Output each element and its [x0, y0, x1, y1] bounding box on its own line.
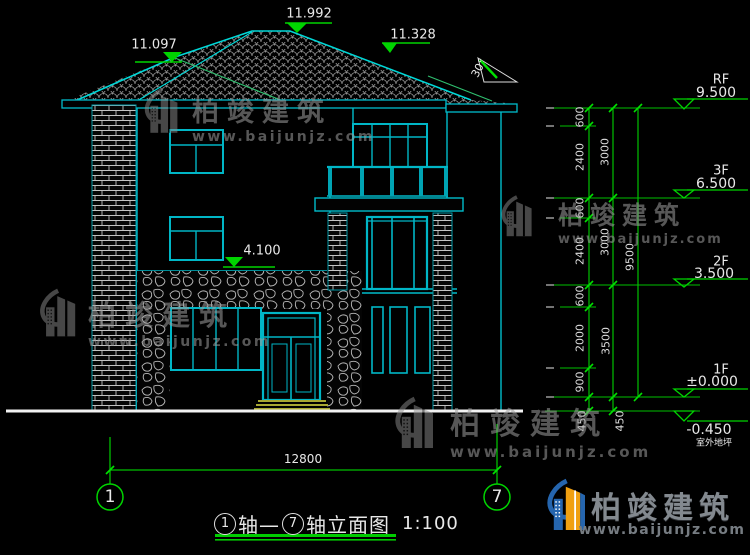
balcony-railing [327, 167, 448, 196]
elev-left-ridge: 11.097 [131, 38, 177, 53]
axis-bubble-7: 7 [492, 487, 503, 507]
title-mid: 轴— [238, 509, 280, 538]
axis-bubble-1: 1 [105, 487, 116, 507]
cad-elevation-drawing: 11.097 11.992 11.328 4.100 30° RF 9.500 … [0, 0, 750, 555]
watermark-bottom: 柏竣建筑 www.baijunjz.com [450, 399, 651, 461]
level-markers [674, 99, 748, 421]
title-axis-circle-left: 1 [214, 513, 236, 535]
level-value-1f: ±0.000 [686, 374, 738, 390]
brick-pillar-left [92, 105, 136, 410]
elev-main-ridge: 11.992 [286, 7, 332, 22]
extension-leader-dashes [546, 108, 554, 397]
brand-logo-url: www.baijunjz.com [579, 522, 746, 538]
level-value-2f: 3.500 [694, 266, 734, 282]
dim-a-2: 2400 [574, 143, 587, 171]
elev-stone-top: 4.100 [243, 244, 280, 259]
title-scale: 1:100 [402, 513, 459, 534]
level-value-rf: 9.500 [696, 85, 736, 101]
level-extension-lines [545, 108, 700, 411]
level-sub-ground: 室外地坪 [696, 436, 732, 449]
dim-b-1: 3000 [599, 138, 612, 166]
watermark-left: 柏竣建筑 www.baijunjz.com [88, 294, 271, 350]
brick-pillar-porch-left [328, 213, 347, 290]
elev-right-ridge: 11.328 [390, 28, 436, 43]
title-axis-circle-right: 7 [282, 513, 304, 535]
dim-a-1: 600 [574, 107, 587, 128]
eave-right [446, 104, 517, 112]
dim-a-5: 600 [574, 286, 587, 307]
dim-b-3: 3500 [600, 327, 613, 355]
level-value-3f: 6.500 [696, 176, 736, 192]
drawing-title: 1 轴— 7 轴立面图 1:100 [214, 509, 459, 538]
door-steps [254, 401, 330, 409]
bottom-dimension [97, 424, 510, 510]
watermark-top: 柏竣建筑 www.baijunjz.com [192, 90, 375, 145]
entrance-door [263, 313, 320, 400]
dim-a-6: 2000 [574, 324, 587, 352]
brick-pillar-porch-right [433, 213, 452, 410]
porch-roof-slab [315, 198, 463, 211]
elevation-vector-layer [0, 0, 750, 555]
title-underline-thin [215, 539, 396, 541]
brand-logo-text: 柏竣建筑 [591, 483, 735, 527]
watermark-right: 柏竣建筑 www.baijunjz.com [558, 196, 723, 247]
dim-a-7: 900 [574, 372, 587, 393]
dim-bottom-overall: 12800 [284, 452, 322, 466]
title-text: 轴立面图 [306, 509, 390, 538]
dim-c-1: 9500 [624, 243, 637, 271]
